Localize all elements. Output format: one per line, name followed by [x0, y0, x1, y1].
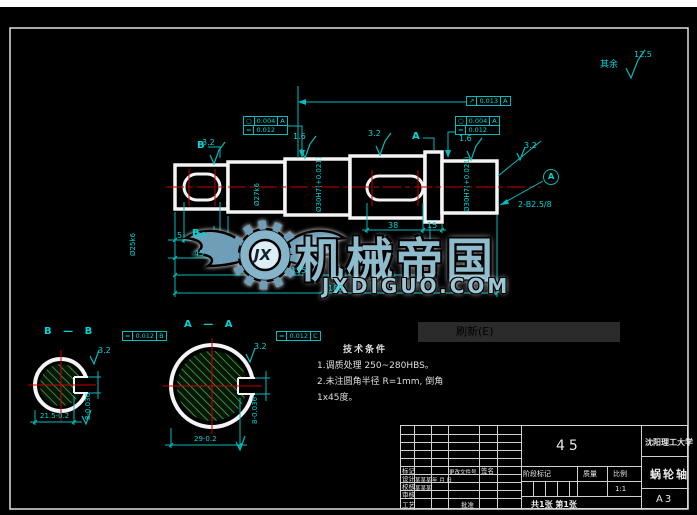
tb-scale-value: 1:1	[615, 485, 626, 493]
dim-188: 188	[328, 284, 343, 293]
tolerance-frame-2: ↗ 0.013 A	[466, 96, 511, 106]
technical-notes: 技术条件 1.调质处理 250~280HBS。 2.未注圆角半径 R=1mm, …	[317, 342, 443, 406]
watermark-monogram: JX	[254, 246, 271, 264]
datum-a-label: A	[548, 172, 554, 181]
roughness-chamfer: 3.2	[524, 141, 537, 150]
technical-note-line: 2.未注圆角半径 R=1mm, 倒角	[317, 374, 443, 390]
tb-check-name: 某某某	[415, 484, 432, 492]
dim-38: 38	[388, 221, 398, 230]
section-b-title: B — B	[44, 327, 96, 336]
gdt-datum: A	[501, 97, 509, 105]
tb-part-name: 蜗轮轴	[650, 466, 689, 482]
tb-design-name: 某某某	[415, 476, 432, 484]
tb-mass-label: 质量	[583, 470, 597, 478]
tb-sheets: 共1张 第1张	[531, 499, 577, 510]
general-roughness-label: 其余	[600, 61, 618, 70]
section-b-rough: 3.2	[98, 346, 111, 355]
dim-45: 45	[194, 249, 204, 258]
tb-material: 45	[556, 438, 582, 454]
tb-check-label: 校核	[402, 483, 415, 491]
technical-note-line: 1.调质处理 250~280HBS。	[317, 358, 443, 374]
tb-design-date: 年 月 日	[432, 476, 452, 484]
dia-seg5: Ø30H7(+0.021)	[463, 156, 471, 212]
section-a-slot: 8-0.036	[251, 397, 259, 424]
general-roughness-value: 12.5	[634, 50, 652, 59]
gdt-value: 0.012	[254, 126, 277, 134]
gdt-value: 0.012	[287, 332, 311, 340]
tb-process-label: 工艺	[402, 501, 415, 509]
technical-note-line: 1x45度。	[317, 390, 443, 406]
roughness-seg3: 1.6	[293, 132, 306, 141]
tb-sign-label: 签名	[481, 467, 494, 475]
title-block: 标记 更改文件号 签名 设计 某某某 年 月 日 校核 某某某 审核 工艺 批准…	[400, 425, 688, 509]
roughness-seg4: 3.2	[368, 129, 381, 138]
tb-university: 沈阳理工大学	[645, 437, 693, 448]
section-a-title: A — A	[184, 320, 236, 329]
gdt-datum: A	[490, 117, 498, 125]
section-a-rough: 3.2	[254, 342, 267, 351]
tb-approve-label: 批准	[461, 501, 474, 509]
tolerance-frame-3: ○ 0.004 A = 0.012	[455, 116, 500, 135]
dia-seg3: Ø30H7(+0.021)	[315, 156, 323, 212]
gdt-value: 0.012	[133, 332, 157, 340]
center-holes-note: 2-B2.5/8	[518, 200, 552, 209]
dim-15: 15	[427, 221, 437, 230]
tolerance-frame-1: ○ 0.004 A = 0.012	[243, 116, 288, 135]
cut-label-a-top: A	[412, 131, 420, 142]
gdt-value: 0.004	[467, 117, 491, 125]
gdt-symbol: ↗	[467, 97, 477, 105]
context-menu: 刷新(E)	[418, 322, 620, 342]
dim-5: 5	[177, 231, 182, 240]
gdt-symbol: =	[244, 126, 254, 134]
tb-stage-label: 阶段标记	[523, 470, 551, 478]
gdt-datum: A	[278, 117, 286, 125]
tb-paper-size: A3	[656, 494, 673, 505]
tb-change-label: 更改文件号	[449, 468, 477, 476]
gdt-datum: C	[311, 332, 320, 340]
tb-design-label: 设计	[402, 475, 415, 483]
gdt-value: 0.012	[466, 126, 489, 134]
gdt-symbol: ○	[244, 117, 255, 125]
gdt-value: 0.004	[255, 117, 279, 125]
gdt-symbol: =	[277, 332, 287, 340]
gdt-datum: B	[157, 332, 165, 340]
section-a-view	[163, 338, 270, 450]
gdt-symbol: =	[123, 332, 133, 340]
menu-item-refresh[interactable]: 刷新(E)	[418, 322, 620, 342]
gdt-value: 0.013	[477, 97, 501, 105]
section-b-slot: 8-0.036	[84, 393, 92, 420]
gdt-symbol: =	[456, 126, 466, 134]
dia-seg1: Ø25k6	[129, 233, 137, 256]
watermark-domain: JXDIGUO.COM	[322, 274, 510, 298]
section-b-width: 21.5-0.2	[40, 412, 69, 421]
dia-seg2: Ø27k6	[253, 183, 261, 206]
tb-mark-label: 标记	[402, 467, 415, 475]
dim-155: 155	[291, 266, 306, 275]
technical-notes-title: 技术条件	[343, 342, 443, 358]
tolerance-frame-c: = 0.012 C	[276, 331, 321, 341]
dim-28: 28	[196, 231, 206, 240]
gdt-symbol: ○	[456, 117, 467, 125]
cut-label-b-top: B	[197, 140, 205, 151]
tolerance-frame-b: = 0.012 B	[122, 331, 167, 341]
tb-review-label: 审核	[402, 491, 415, 499]
cad-window: JX 机械帝国 JXDIGUO.COM 3.2 1.6 3.2 1.6 3.2 …	[0, 0, 697, 515]
roughness-seg5: 1.6	[459, 134, 472, 143]
section-a-width: 29-0.2	[194, 435, 217, 444]
tb-scale-label: 比例	[613, 470, 627, 478]
